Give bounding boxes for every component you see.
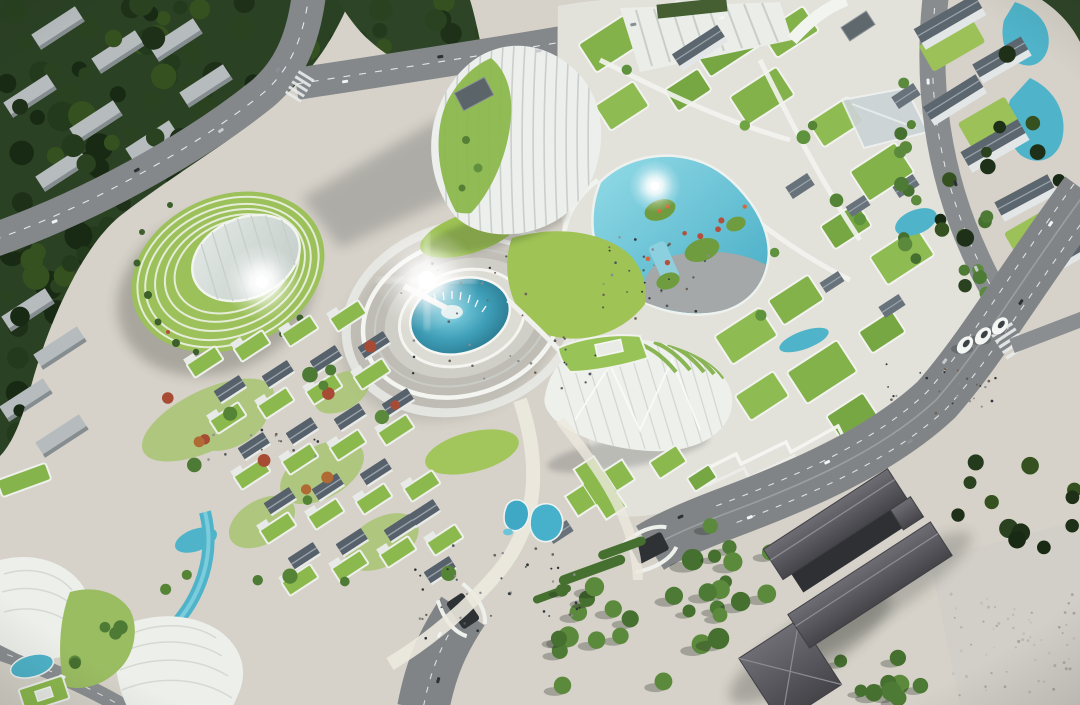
vignette [0, 0, 1080, 705]
sun-glare-large [375, 228, 479, 332]
sun-glare-small [629, 160, 681, 212]
aerial-render: Aerial rendering of a futuristic eco-dis… [0, 0, 1080, 705]
masterplan-scene: Aerial rendering of a futuristic eco-dis… [0, 0, 1080, 705]
sun-glare-dome [224, 244, 300, 320]
